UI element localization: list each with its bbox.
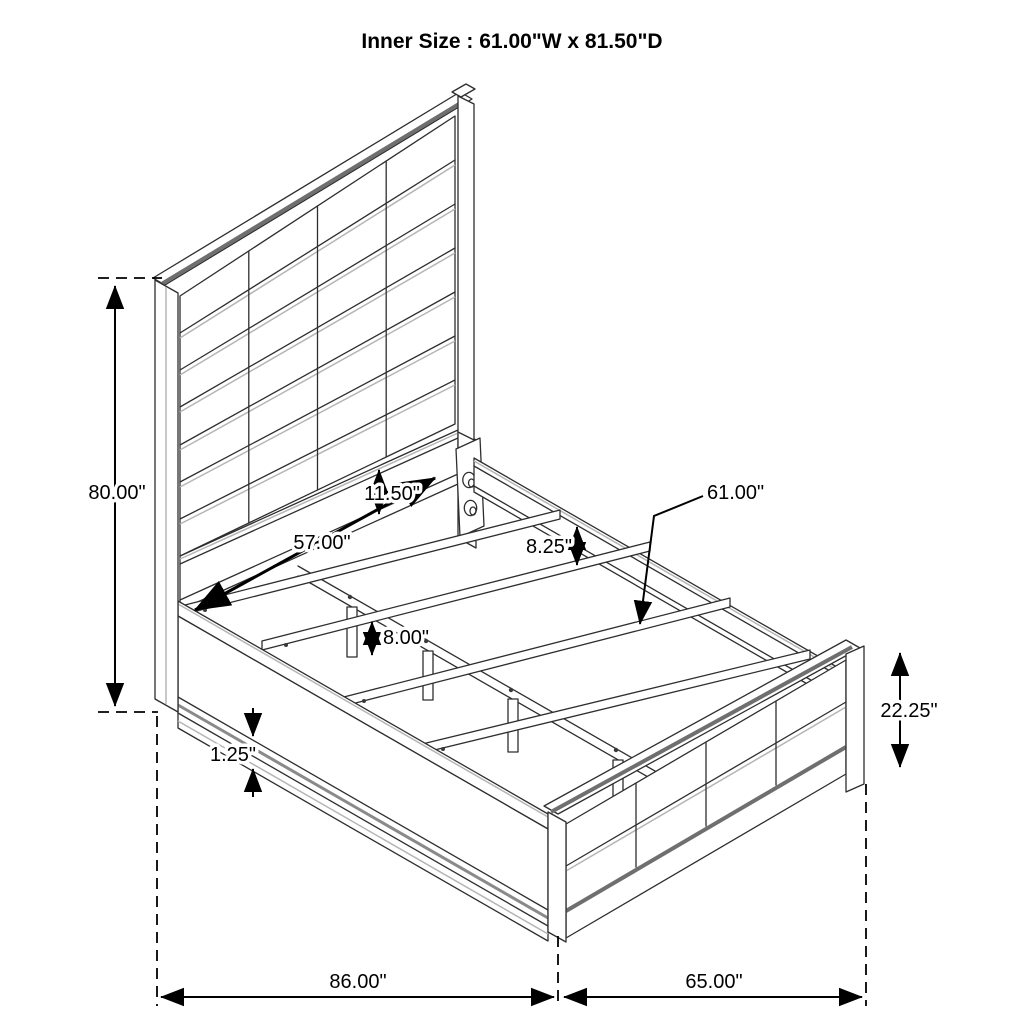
dim-support-leg: 8.00" — [372, 622, 429, 655]
near-side-rail — [178, 601, 548, 941]
dim-headboard-height: 80.00" — [88, 278, 162, 712]
dim-side-rail-label: 8.25" — [526, 536, 572, 558]
dim-footboard-height-label: 22.25" — [880, 700, 937, 722]
bed-frame-drawing: 80.00" 57.00" 11.50" 8.25" 61.00" 8.00" … — [0, 0, 1024, 1024]
footboard-right-post — [846, 646, 864, 792]
page-title: Inner Size : 61.00"W x 81.50"D — [361, 30, 662, 53]
dim-slat-span-label: 57.00" — [293, 532, 350, 554]
dim-footboard-height: 22.25" — [880, 653, 937, 767]
dim-headboard-height-label: 80.00" — [88, 482, 145, 504]
dim-inner-width-label: 61.00" — [707, 482, 764, 504]
dimension-diagram: 80.00" 57.00" 11.50" 8.25" 61.00" 8.00" … — [0, 0, 1024, 1024]
dim-overall-depth-label: 86.00" — [329, 971, 386, 993]
dim-head-rail-label: 11.50" — [364, 483, 420, 505]
dim-rail-lip-label: 1.25" — [210, 744, 256, 766]
dim-footboard-width-label: 65.00" — [685, 971, 742, 993]
footboard-left-post — [548, 812, 566, 942]
dim-support-leg-label: 8.00" — [383, 627, 429, 649]
headboard-right-post — [458, 96, 474, 440]
